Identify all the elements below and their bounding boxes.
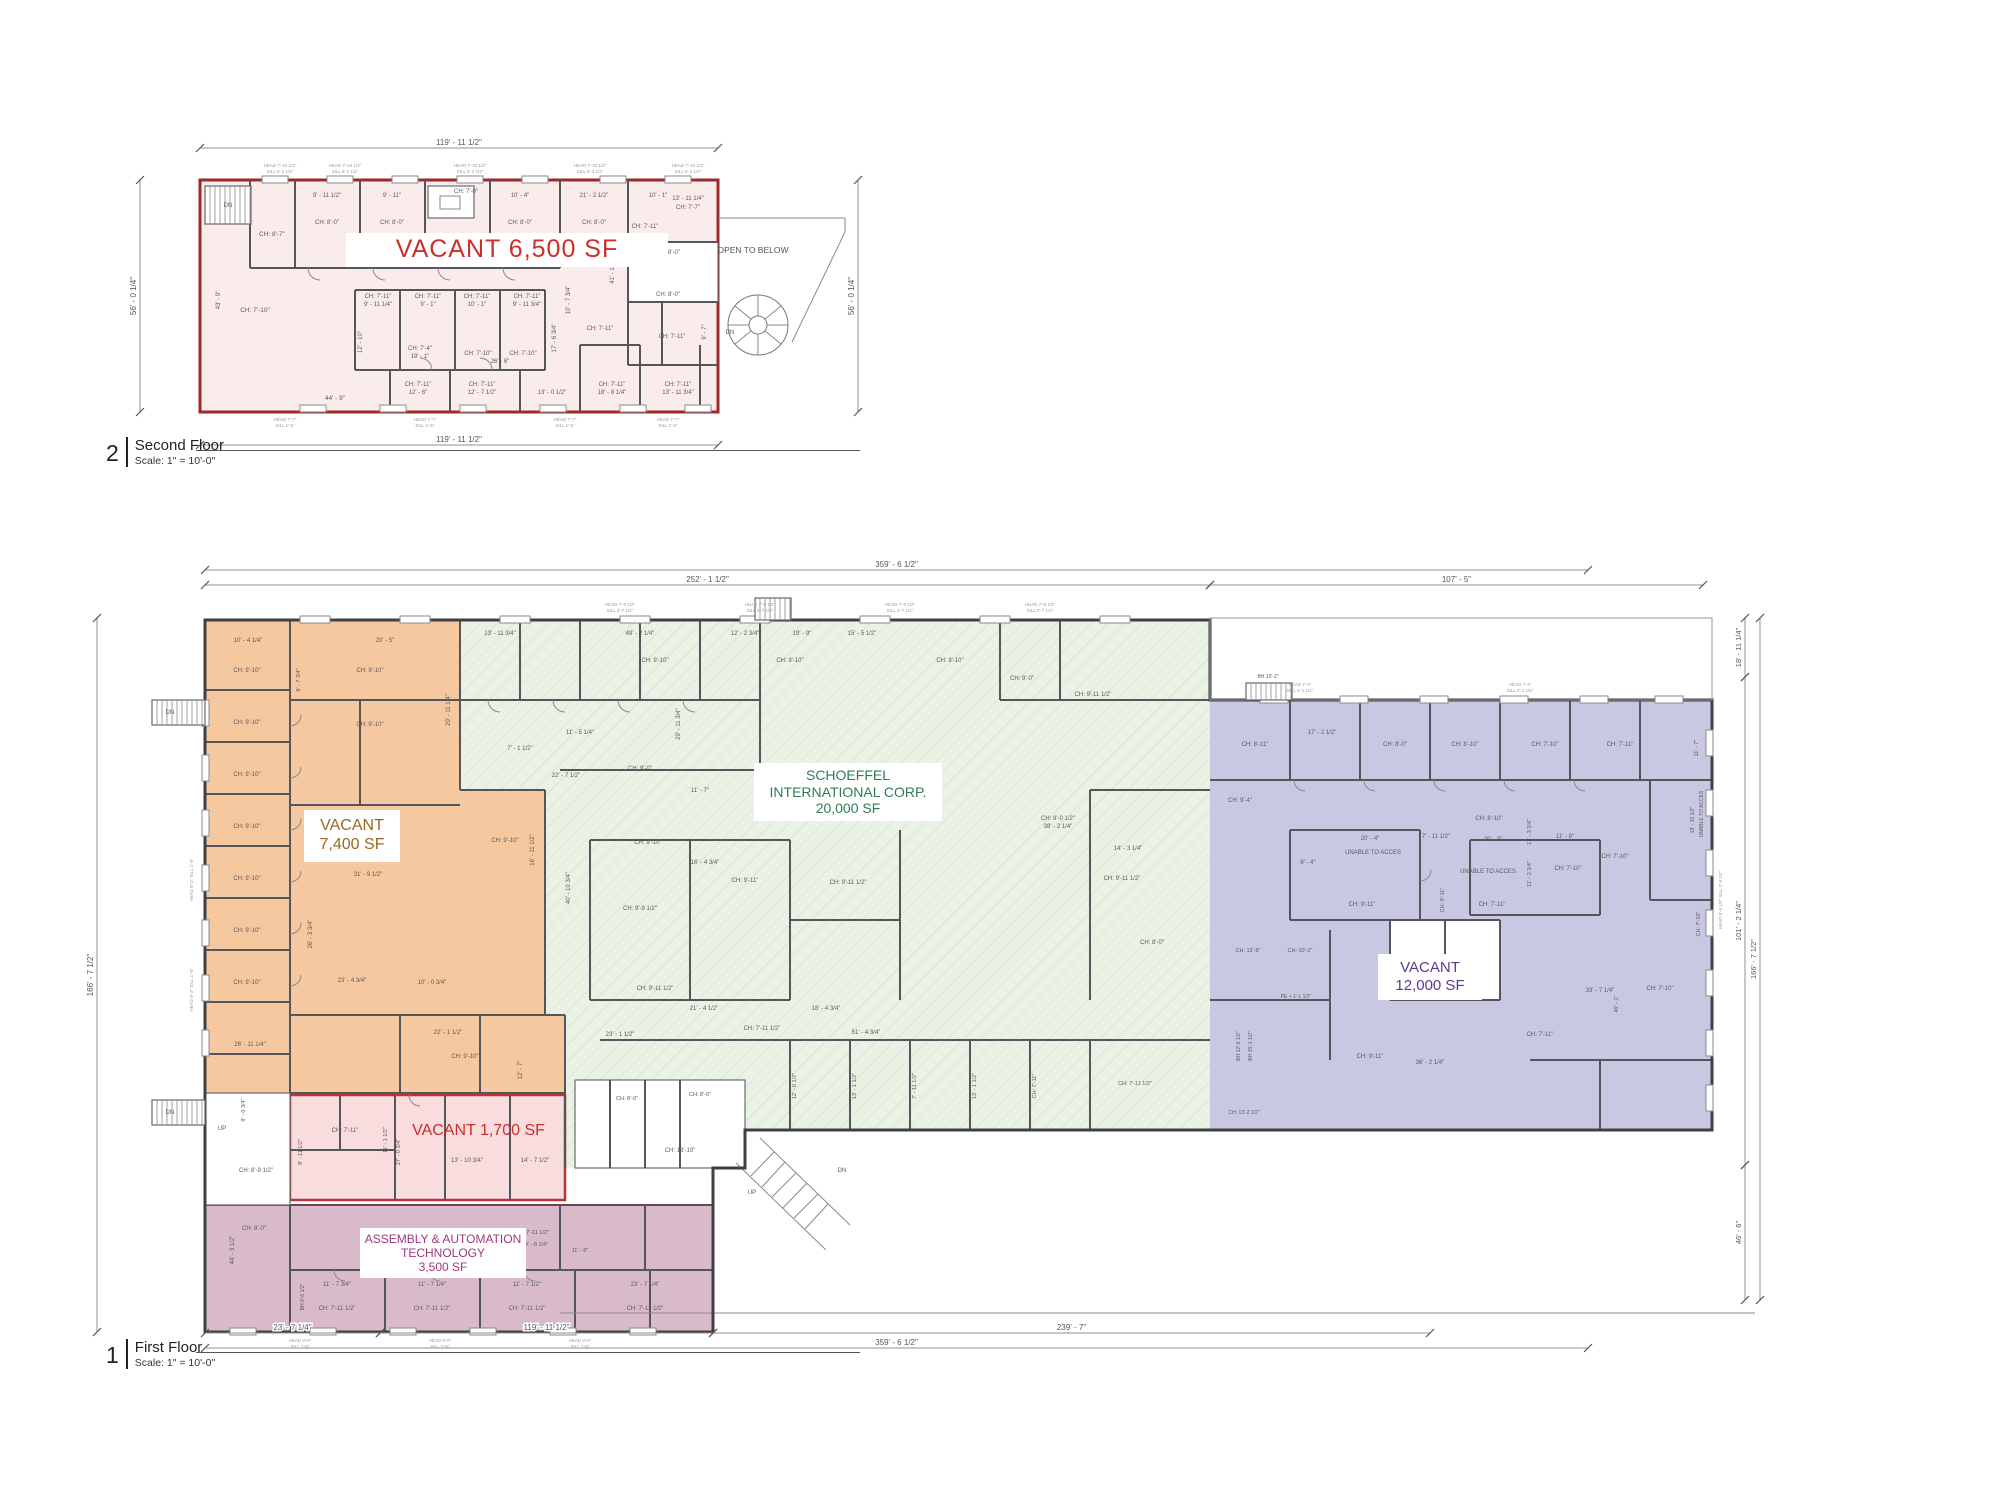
zone-label-line: VACANT — [1400, 959, 1460, 977]
svg-text:SILL 6'-2 1/2": SILL 6'-2 1/2" — [332, 169, 359, 174]
svg-text:CH: 7'-11": CH: 7'-11" — [469, 382, 496, 388]
svg-text:CH: 13'-2 1/2": CH: 13'-2 1/2" — [1228, 1110, 1259, 1116]
svg-text:SILL 2'-7 1/2": SILL 2'-7 1/2" — [607, 608, 634, 613]
svg-text:CH: 8'-10": CH: 8'-10" — [1451, 742, 1478, 748]
svg-text:20' - 3": 20' - 3" — [1484, 837, 1503, 843]
svg-text:SILL 6'-2 1/2": SILL 6'-2 1/2" — [457, 169, 484, 174]
zone-label-line: 20,000 SF — [816, 800, 881, 817]
zone-label-line: VACANT — [320, 817, 384, 836]
svg-text:23' - 1 1/2": 23' - 1 1/2" — [606, 1032, 635, 1038]
svg-text:14' - 7 1/2": 14' - 7 1/2" — [521, 1158, 550, 1164]
svg-text:CH: 7'-11 1/2": CH: 7'-11 1/2" — [319, 1306, 356, 1312]
svg-text:10' - 1": 10' - 1" — [468, 302, 487, 308]
svg-text:21' - 4 1/2": 21' - 4 1/2" — [690, 1006, 719, 1012]
svg-text:13' - 11 3/4": 13' - 11 3/4" — [484, 631, 516, 637]
svg-text:CH: 9'-10": CH: 9'-10" — [356, 722, 383, 728]
svg-text:CH: 7'-4": CH: 7'-4" — [408, 346, 432, 352]
svg-text:CH: 8'-0": CH: 8'-0" — [508, 220, 532, 226]
svg-text:CH: 9'-10": CH: 9'-10" — [233, 772, 260, 778]
svg-text:9' - 1": 9' - 1" — [420, 302, 435, 308]
svg-text:CH: 8'-0": CH: 8'-0" — [380, 220, 404, 226]
svg-text:CH: 9'-11": CH: 9'-11" — [1440, 888, 1446, 913]
svg-text:CH: 9'-10": CH: 9'-10" — [451, 1054, 478, 1060]
svg-text:11' - 5 1/4": 11' - 5 1/4" — [566, 730, 594, 736]
svg-text:11' - 7 3/4": 11' - 7 3/4" — [323, 1282, 351, 1288]
svg-text:CH: 9'-10": CH: 9'-10" — [233, 928, 260, 934]
svg-text:SILL 1'-6": SILL 1'-6" — [570, 1344, 590, 1349]
svg-text:HEAD 7'-10 1/2": HEAD 7'-10 1/2" — [672, 163, 705, 168]
svg-text:27' - 0 3/4": 27' - 0 3/4" — [396, 1139, 402, 1165]
svg-text:9' - 11 1/2": 9' - 11 1/2" — [313, 193, 341, 199]
svg-text:CH: 7'-10": CH: 7'-10" — [240, 307, 270, 314]
svg-text:CH: 7'-11": CH: 7'-11" — [332, 1128, 359, 1134]
svg-text:SILL 2'-7 1/2": SILL 2'-7 1/2" — [747, 608, 774, 613]
title-block-second-floor: 2 Second Floor Scale: 1" = 10'-0" — [106, 437, 224, 467]
svg-text:11' - 7": 11' - 7" — [691, 788, 709, 794]
svg-text:10' - 0 3/4": 10' - 0 3/4" — [418, 980, 447, 986]
svg-text:20' - 5": 20' - 5" — [376, 638, 395, 644]
svg-text:CH: 9'-10": CH: 9'-10" — [641, 658, 668, 664]
zone-label-line: SCHOEFFEL — [806, 767, 890, 784]
svg-text:11' - 8": 11' - 8" — [572, 1248, 589, 1254]
svg-text:HEAD 7'-4": HEAD 7'-4" — [1509, 682, 1532, 687]
svg-text:CH: 18'-10": CH: 18'-10" — [665, 1148, 696, 1154]
svg-text:CH: 7'-10": CH: 7'-10" — [1696, 911, 1702, 936]
svg-text:CH: 7'-11": CH: 7'-11" — [464, 294, 491, 300]
svg-text:PE + 1'-1 1/2": PE + 1'-1 1/2" — [1281, 994, 1312, 1000]
svg-text:HEAD 7'-10 1/2": HEAD 7'-10 1/2" — [329, 163, 362, 168]
svg-text:CH: 9'-10": CH: 9'-10" — [233, 668, 260, 674]
svg-text:12' - 0 1/2": 12' - 0 1/2" — [792, 1073, 798, 1099]
svg-text:CH: 7'-11": CH: 7'-11" — [1479, 902, 1506, 908]
svg-text:31' - 9 1/2": 31' - 9 1/2" — [354, 872, 383, 878]
zone-label-text: VACANT 6,500 SF — [396, 235, 619, 265]
svg-text:CH: 9'-11 1/2": CH: 9'-11 1/2" — [637, 986, 674, 992]
svg-text:40' - 10 3/4": 40' - 10 3/4" — [566, 872, 572, 904]
svg-text:HEAD 8'-2" SILL 1'-8": HEAD 8'-2" SILL 1'-8" — [189, 858, 194, 902]
svg-text:CH: 9'-10": CH: 9'-10" — [634, 840, 661, 846]
svg-text:CH: 9'-10": CH: 9'-10" — [491, 838, 518, 844]
zone-label-vacant-7400: VACANT 7,400 SF — [304, 810, 400, 862]
svg-text:359' - 6 1/2": 359' - 6 1/2" — [875, 1338, 918, 1347]
zone-label-vacant-1700: VACANT 1,700 SF — [406, 1118, 551, 1144]
svg-text:HEAD 7'-10 1/2": HEAD 7'-10 1/2" — [574, 163, 607, 168]
svg-text:10' - 4 1/4": 10' - 4 1/4" — [234, 638, 263, 644]
svg-text:CH: 9'-9 1/2": CH: 9'-9 1/2" — [623, 906, 657, 912]
svg-text:CH: 9'-10": CH: 9'-10" — [936, 658, 963, 664]
svg-text:8' - 4": 8' - 4" — [1300, 860, 1315, 866]
svg-text:CH: 9'-10": CH: 9'-10" — [233, 876, 260, 882]
title-block-first-floor: 1 First Floor Scale: 1" = 10'-0" — [106, 1339, 215, 1369]
svg-text:BH 13'-2": BH 13'-2" — [1257, 674, 1278, 680]
svg-text:UNABLE TO ACCES: UNABLE TO ACCES — [1345, 850, 1401, 856]
svg-text:CH: 9'-10": CH: 9'-10" — [233, 824, 260, 830]
svg-text:166' - 7 1/2": 166' - 7 1/2" — [86, 954, 95, 997]
svg-text:CH: 8'-7": CH: 8'-7" — [259, 231, 286, 238]
svg-text:CH: 7'-11 1/2": CH: 7'-11 1/2" — [1118, 1081, 1152, 1087]
svg-text:CH: 9'-10": CH: 9'-10" — [776, 658, 803, 664]
svg-text:HEAD 7'-7": HEAD 7'-7" — [657, 417, 680, 422]
svg-text:SILL 1'-5": SILL 1'-5" — [658, 423, 678, 428]
title-underline — [196, 1352, 860, 1353]
svg-text:36' - 2 1/4": 36' - 2 1/4" — [1416, 1060, 1445, 1066]
svg-text:22' - 7 1/2": 22' - 7 1/2" — [552, 773, 581, 779]
svg-text:9' - 11 3/4": 9' - 11 3/4" — [513, 302, 541, 308]
sheet-number: 2 — [106, 440, 119, 467]
svg-text:9' - 11 1/4": 9' - 11 1/4" — [364, 302, 392, 308]
svg-text:HEAD 7'-10 1/2": HEAD 7'-10 1/2" — [454, 163, 487, 168]
svg-text:29' - 11 1/4": 29' - 11 1/4" — [446, 694, 452, 726]
svg-text:29' - 11 3/4": 29' - 11 3/4" — [676, 708, 682, 740]
floor-plan-canvas: 119' - 11 1/2"119' - 11 1/2"56' - 0 1/4"… — [0, 0, 2000, 1500]
svg-text:BH 9'-6 1/2": BH 9'-6 1/2" — [300, 1283, 306, 1310]
title-underline — [196, 450, 860, 451]
svg-text:CH: 7'-11": CH: 7'-11" — [1032, 1074, 1038, 1099]
svg-text:11' - 3 3/4": 11' - 3 3/4" — [1527, 819, 1533, 845]
svg-text:18' - 11 1/4": 18' - 11 1/4" — [1734, 627, 1743, 667]
svg-text:UP: UP — [748, 1190, 756, 1196]
svg-text:10' - 7 3/4": 10' - 7 3/4" — [566, 286, 572, 315]
svg-text:CH: 7'-11": CH: 7'-11" — [365, 294, 392, 300]
svg-text:HEAD 7'-7": HEAD 7'-7" — [274, 417, 297, 422]
svg-text:17' - 6 3/4": 17' - 6 3/4" — [552, 324, 558, 353]
svg-text:107' - 5": 107' - 5" — [1442, 575, 1471, 584]
svg-text:CH: 8'-0": CH: 8'-0" — [582, 220, 606, 226]
svg-text:43' - 9": 43' - 9" — [216, 291, 222, 310]
svg-text:49' - 2 1/4": 49' - 2 1/4" — [626, 631, 655, 637]
sheet-number: 1 — [106, 1342, 119, 1369]
svg-text:12' - 7 1/2": 12' - 7 1/2" — [468, 390, 497, 396]
svg-text:BH 12'-9 1/2": BH 12'-9 1/2" — [1236, 1031, 1242, 1061]
svg-text:CH: 7'-11": CH: 7'-11" — [415, 294, 442, 300]
svg-text:SILL 2'-1 1/2": SILL 2'-1 1/2" — [1507, 688, 1534, 693]
svg-text:CH: 10'-2": CH: 10'-2" — [1287, 948, 1312, 954]
svg-text:CH: 8'-0": CH: 8'-0" — [689, 1092, 711, 1098]
floor-title: Second Floor — [135, 437, 224, 454]
svg-text:CH: 7'-11": CH: 7'-11" — [665, 382, 692, 388]
svg-text:SILL 6'-2 1/2": SILL 6'-2 1/2" — [577, 169, 604, 174]
svg-text:22' - 1 1/2": 22' - 1 1/2" — [434, 1030, 463, 1036]
zone-label-line: 7,400 SF — [320, 836, 385, 855]
svg-text:56' - 0 1/4": 56' - 0 1/4" — [847, 277, 856, 315]
svg-text:19' - 10 1/2": 19' - 10 1/2" — [1690, 806, 1696, 833]
svg-text:HEAD 8'-2" SILL 1'-8": HEAD 8'-2" SILL 1'-8" — [189, 968, 194, 1012]
svg-text:13' - 11 3/4": 13' - 11 3/4" — [662, 390, 694, 396]
svg-text:HEAD 7'-4": HEAD 7'-4" — [1289, 682, 1312, 687]
svg-text:CH: 7'-11": CH: 7'-11" — [632, 224, 659, 230]
svg-text:CH: 7'-11": CH: 7'-11" — [659, 334, 686, 340]
svg-text:CH: 7'-11": CH: 7'-11" — [599, 382, 626, 388]
svg-text:CH: 7'-11": CH: 7'-11" — [587, 326, 614, 332]
svg-text:CH: 7'-10": CH: 7'-10" — [1554, 866, 1581, 872]
svg-text:HEAD 8'-0": HEAD 8'-0" — [569, 1338, 592, 1343]
svg-text:56' - 0 1/4": 56' - 0 1/4" — [129, 277, 138, 315]
svg-text:CH: 8'-0": CH: 8'-0" — [656, 292, 680, 298]
svg-text:CH: 9'-11 1/2": CH: 9'-11 1/2" — [1075, 692, 1112, 698]
svg-text:46' - 6": 46' - 6" — [1734, 1221, 1743, 1245]
svg-text:7' - 11 1/2": 7' - 11 1/2" — [1422, 834, 1450, 840]
svg-text:DN: DN — [838, 1168, 847, 1174]
svg-text:33' - 7 1/4": 33' - 7 1/4" — [1586, 988, 1615, 994]
svg-text:CH: 8'-0": CH: 8'-0" — [242, 1226, 266, 1232]
svg-text:44' - 9": 44' - 9" — [325, 395, 346, 402]
svg-text:SILL 1'-5": SILL 1'-5" — [275, 423, 295, 428]
svg-text:7' - 11 1/2": 7' - 11 1/2" — [912, 1073, 918, 1099]
svg-text:CH: 7'-10": CH: 7'-10" — [1646, 986, 1673, 992]
svg-text:CH: 7'-10": CH: 7'-10" — [1531, 742, 1558, 748]
svg-text:21' - 2 1/2": 21' - 2 1/2" — [580, 193, 609, 199]
svg-text:119' - 11 1/2": 119' - 11 1/2" — [436, 138, 482, 147]
svg-text:11' - 7 1/4": 11' - 7 1/4" — [418, 1282, 446, 1288]
svg-text:HEAD 7'-9 1/2": HEAD 7'-9 1/2" — [1025, 602, 1056, 607]
svg-text:DN: DN — [726, 330, 735, 336]
svg-text:CH: 8'-10": CH: 8'-10" — [1475, 816, 1502, 822]
svg-text:CH: 9'-10": CH: 9'-10" — [233, 720, 260, 726]
svg-text:23' - 7 1/4": 23' - 7 1/4" — [273, 1323, 311, 1332]
svg-text:HEAD 7'-9 1/2": HEAD 7'-9 1/2" — [885, 602, 916, 607]
svg-text:CH: 7'-11": CH: 7'-11" — [514, 294, 541, 300]
svg-text:CH: 9'-11": CH: 9'-11" — [1357, 1054, 1384, 1060]
svg-text:CH: 8'-9 1/2": CH: 8'-9 1/2" — [239, 1168, 273, 1174]
svg-text:10' - 1": 10' - 1" — [649, 193, 668, 199]
svg-text:HEAD 7'-9 1/2": HEAD 7'-9 1/2" — [745, 602, 776, 607]
svg-text:19' - 9": 19' - 9" — [793, 631, 812, 637]
svg-text:CH: 7'-11 1/2": CH: 7'-11 1/2" — [627, 1306, 664, 1312]
svg-text:11' - 7 1/2": 11' - 7 1/2" — [513, 1282, 541, 1288]
svg-text:DN: DN — [224, 203, 233, 209]
svg-text:7' - 1 1/2": 7' - 1 1/2" — [507, 746, 532, 752]
svg-text:HEAD 8'-0 1/2" SILL 2'-8 1/2": HEAD 8'-0 1/2" SILL 2'-8 1/2" — [1718, 870, 1723, 929]
zone-label-line: 12,000 SF — [1395, 977, 1464, 995]
svg-text:SILL 1'-5": SILL 1'-5" — [415, 423, 435, 428]
title-block-body: First Floor Scale: 1" = 10'-0" — [126, 1339, 215, 1369]
svg-text:CH: 7'-11 1/2": CH: 7'-11 1/2" — [744, 1026, 781, 1032]
svg-text:SILL 2'-7 1/2": SILL 2'-7 1/2" — [1027, 608, 1054, 613]
svg-text:CH: 8'-0": CH: 8'-0" — [315, 220, 339, 226]
svg-text:CH: 8'-0": CH: 8'-0" — [616, 1096, 638, 1102]
svg-text:CH: 12'-8": CH: 12'-8" — [1235, 948, 1260, 954]
svg-text:CH: 9'-11": CH: 9'-11" — [732, 878, 759, 884]
zone-label-line: 3,500 SF — [419, 1260, 468, 1274]
svg-text:CH: 7'-11 1/2": CH: 7'-11 1/2" — [509, 1306, 546, 1312]
svg-text:252' - 1 1/2": 252' - 1 1/2" — [686, 575, 729, 584]
svg-text:13' - 11 1/4": 13' - 11 1/4" — [672, 196, 704, 202]
svg-text:11' - 8": 11' - 8" — [1556, 834, 1574, 840]
svg-text:13' - 0 1/2": 13' - 0 1/2" — [538, 390, 567, 396]
svg-text:CH: 7'-0": CH: 7'-0" — [454, 189, 478, 195]
svg-text:HEAD 8'-0": HEAD 8'-0" — [429, 1338, 452, 1343]
svg-text:CH: 9'-4": CH: 9'-4" — [1228, 798, 1252, 804]
svg-text:UP: UP — [218, 1126, 226, 1132]
svg-text:SILL 2'-1 1/2": SILL 2'-1 1/2" — [1287, 688, 1314, 693]
svg-text:SILL 6'-2 1/2": SILL 6'-2 1/2" — [267, 169, 294, 174]
svg-text:11' - 2 3/4": 11' - 2 3/4" — [1527, 861, 1533, 887]
svg-text:10' - 4": 10' - 4" — [511, 193, 530, 199]
svg-text:119' - 11 1/2": 119' - 11 1/2" — [524, 1323, 570, 1332]
zone-label-line: ASSEMBLY & AUTOMATION — [365, 1232, 522, 1246]
svg-text:12' - 10": 12' - 10" — [358, 331, 364, 353]
svg-text:359' - 6 1/2": 359' - 6 1/2" — [875, 560, 918, 569]
svg-text:9' - 0 3/4": 9' - 0 3/4" — [241, 1098, 247, 1121]
svg-text:15' - 5 1/2": 15' - 5 1/2" — [848, 631, 877, 637]
svg-text:101' - 2 1/4": 101' - 2 1/4" — [1734, 901, 1743, 941]
svg-text:CH: 9'-11 1/2": CH: 9'-11 1/2" — [830, 880, 867, 886]
svg-text:CH: 9'-11 1/2": CH: 9'-11 1/2" — [1104, 876, 1141, 882]
svg-text:CH: 9'-0 1/2": CH: 9'-0 1/2" — [1041, 816, 1075, 822]
svg-text:SILL 2'-7 1/2": SILL 2'-7 1/2" — [887, 608, 914, 613]
svg-text:CH: 9'-10": CH: 9'-10" — [356, 668, 383, 674]
svg-text:CH: 7'-11": CH: 7'-11" — [405, 382, 432, 388]
svg-text:18' - 4 3/4": 18' - 4 3/4" — [812, 1006, 841, 1012]
zone-label-line: TECHNOLOGY — [401, 1246, 485, 1260]
svg-text:239' - 7": 239' - 7" — [1057, 1323, 1086, 1332]
floor-scale: Scale: 1" = 10'-0" — [135, 455, 224, 467]
zone-label-text: VACANT 1,700 SF — [412, 1122, 545, 1141]
svg-text:12' - 7": 12' - 7" — [518, 1061, 524, 1080]
svg-text:CH: 7'-10": CH: 7'-10" — [1601, 854, 1628, 860]
floor-scale: Scale: 1" = 10'-0" — [135, 1357, 215, 1369]
svg-text:CH: 8'-11": CH: 8'-11" — [1242, 742, 1269, 748]
svg-text:49' - 1": 49' - 1" — [1614, 995, 1620, 1012]
svg-text:26' - 11 1/4": 26' - 11 1/4" — [234, 1042, 266, 1048]
svg-text:CH: 7'-10": CH: 7'-10" — [464, 351, 491, 357]
zone-label-assembly: ASSEMBLY & AUTOMATION TECHNOLOGY 3,500 S… — [360, 1228, 526, 1278]
svg-text:HEAD 7'-7": HEAD 7'-7" — [414, 417, 437, 422]
open-to-below-label: OPEN TO BELOW — [704, 243, 802, 257]
svg-text:12' - 2 3/4": 12' - 2 3/4" — [731, 631, 760, 637]
svg-text:CH: 7'-7": CH: 7'-7" — [676, 205, 700, 211]
svg-text:CH: 7'-11 1/2": CH: 7'-11 1/2" — [414, 1306, 451, 1312]
svg-text:CH: 9'-0": CH: 9'-0" — [1010, 676, 1034, 682]
svg-text:12' - 6": 12' - 6" — [409, 390, 428, 396]
zone-label-line: INTERNATIONAL CORP. — [770, 784, 927, 801]
svg-text:8' - 7 3/4": 8' - 7 3/4" — [296, 668, 302, 691]
svg-text:DN: DN — [166, 710, 175, 716]
svg-text:14' - 3 1/4": 14' - 3 1/4" — [1114, 846, 1143, 852]
svg-text:CH: 7'-11": CH: 7'-11" — [1527, 1032, 1554, 1038]
zone-label-text: OPEN TO BELOW — [717, 245, 788, 255]
svg-text:SILL 1'-6": SILL 1'-6" — [430, 1344, 450, 1349]
svg-text:119' - 11 1/2": 119' - 11 1/2" — [436, 435, 482, 444]
svg-text:20' - 4": 20' - 4" — [1361, 836, 1380, 842]
svg-text:CH: 7'-10": CH: 7'-10" — [509, 351, 536, 357]
svg-text:26' - 3 3/4": 26' - 3 3/4" — [308, 920, 314, 949]
svg-text:CH: 9'-11": CH: 9'-11" — [1349, 902, 1376, 908]
drawing-sheet: 119' - 11 1/2"119' - 11 1/2"56' - 0 1/4"… — [0, 0, 2000, 1500]
zone-label-vacant-12000: VACANT 12,000 SF — [1378, 954, 1482, 1000]
svg-text:BH 15'-1 1/2": BH 15'-1 1/2" — [1248, 1031, 1254, 1061]
svg-text:23' - 4 3/4": 23' - 4 3/4" — [338, 978, 367, 984]
title-block-body: Second Floor Scale: 1" = 10'-0" — [126, 437, 224, 467]
svg-text:19' - 1": 19' - 1" — [411, 354, 430, 360]
svg-text:HEAD 7'-7": HEAD 7'-7" — [554, 417, 577, 422]
floor-title: First Floor — [135, 1339, 215, 1356]
svg-text:CH: 8'-0": CH: 8'-0" — [1383, 742, 1407, 748]
svg-text:UNABLE TO ACCES: UNABLE TO ACCES — [1460, 869, 1516, 875]
svg-text:26' - 6": 26' - 6" — [491, 359, 510, 365]
svg-text:UNABLE TO ACCES: UNABLE TO ACCES — [1699, 790, 1705, 837]
zone-label-schoeffel: SCHOEFFEL INTERNATIONAL CORP. 20,000 SF — [754, 763, 942, 821]
svg-text:18' - 8 1/4": 18' - 8 1/4" — [598, 390, 627, 396]
svg-text:CH: 8'-0": CH: 8'-0" — [1140, 940, 1164, 946]
svg-text:CH: 7'-11": CH: 7'-11" — [1607, 742, 1634, 748]
svg-text:13' - 10 3/4": 13' - 10 3/4" — [451, 1158, 483, 1164]
svg-text:HEAD 8'-0": HEAD 8'-0" — [289, 1338, 312, 1343]
svg-text:HEAD 7'-10 1/2": HEAD 7'-10 1/2" — [264, 163, 297, 168]
svg-text:38' - 2 1/4": 38' - 2 1/4" — [1044, 824, 1073, 830]
svg-text:44' - 3 1/2": 44' - 3 1/2" — [230, 1236, 236, 1265]
svg-text:166' - 7 1/2": 166' - 7 1/2" — [1749, 939, 1758, 979]
svg-text:11' - 7": 11' - 7" — [1694, 740, 1700, 757]
zone-label-vacant-6500: VACANT 6,500 SF — [346, 233, 668, 267]
svg-text:16' - 11 1/2": 16' - 11 1/2" — [530, 834, 536, 866]
svg-text:13' - 1 1/2": 13' - 1 1/2" — [852, 1073, 858, 1099]
svg-text:SILL 1'-5": SILL 1'-5" — [555, 423, 575, 428]
svg-text:8' - 11 1/2": 8' - 11 1/2" — [298, 1139, 304, 1165]
svg-text:13' - 1 1/2": 13' - 1 1/2" — [972, 1073, 978, 1099]
svg-text:SILL 6'-2 1/2": SILL 6'-2 1/2" — [675, 169, 702, 174]
svg-text:23' - 7 1/4": 23' - 7 1/4" — [631, 1282, 660, 1288]
svg-text:11' - 1 1/2": 11' - 1 1/2" — [383, 1127, 389, 1153]
svg-text:51' - 4 3/4": 51' - 4 3/4" — [852, 1030, 881, 1036]
svg-text:17' - 2 1/2": 17' - 2 1/2" — [1308, 730, 1337, 736]
svg-text:9' - 11": 9' - 11" — [383, 193, 401, 199]
svg-text:DN: DN — [166, 1110, 175, 1116]
svg-text:SILL 1'-6": SILL 1'-6" — [290, 1344, 310, 1349]
svg-text:CH: 9'-0": CH: 9'-0" — [628, 766, 652, 772]
svg-text:HEAD 7'-9 1/2": HEAD 7'-9 1/2" — [605, 602, 636, 607]
svg-text:9' - 7": 9' - 7" — [702, 324, 708, 339]
svg-text:16' - 4 3/4": 16' - 4 3/4" — [691, 860, 720, 866]
svg-text:CH: 9'-10": CH: 9'-10" — [233, 980, 260, 986]
